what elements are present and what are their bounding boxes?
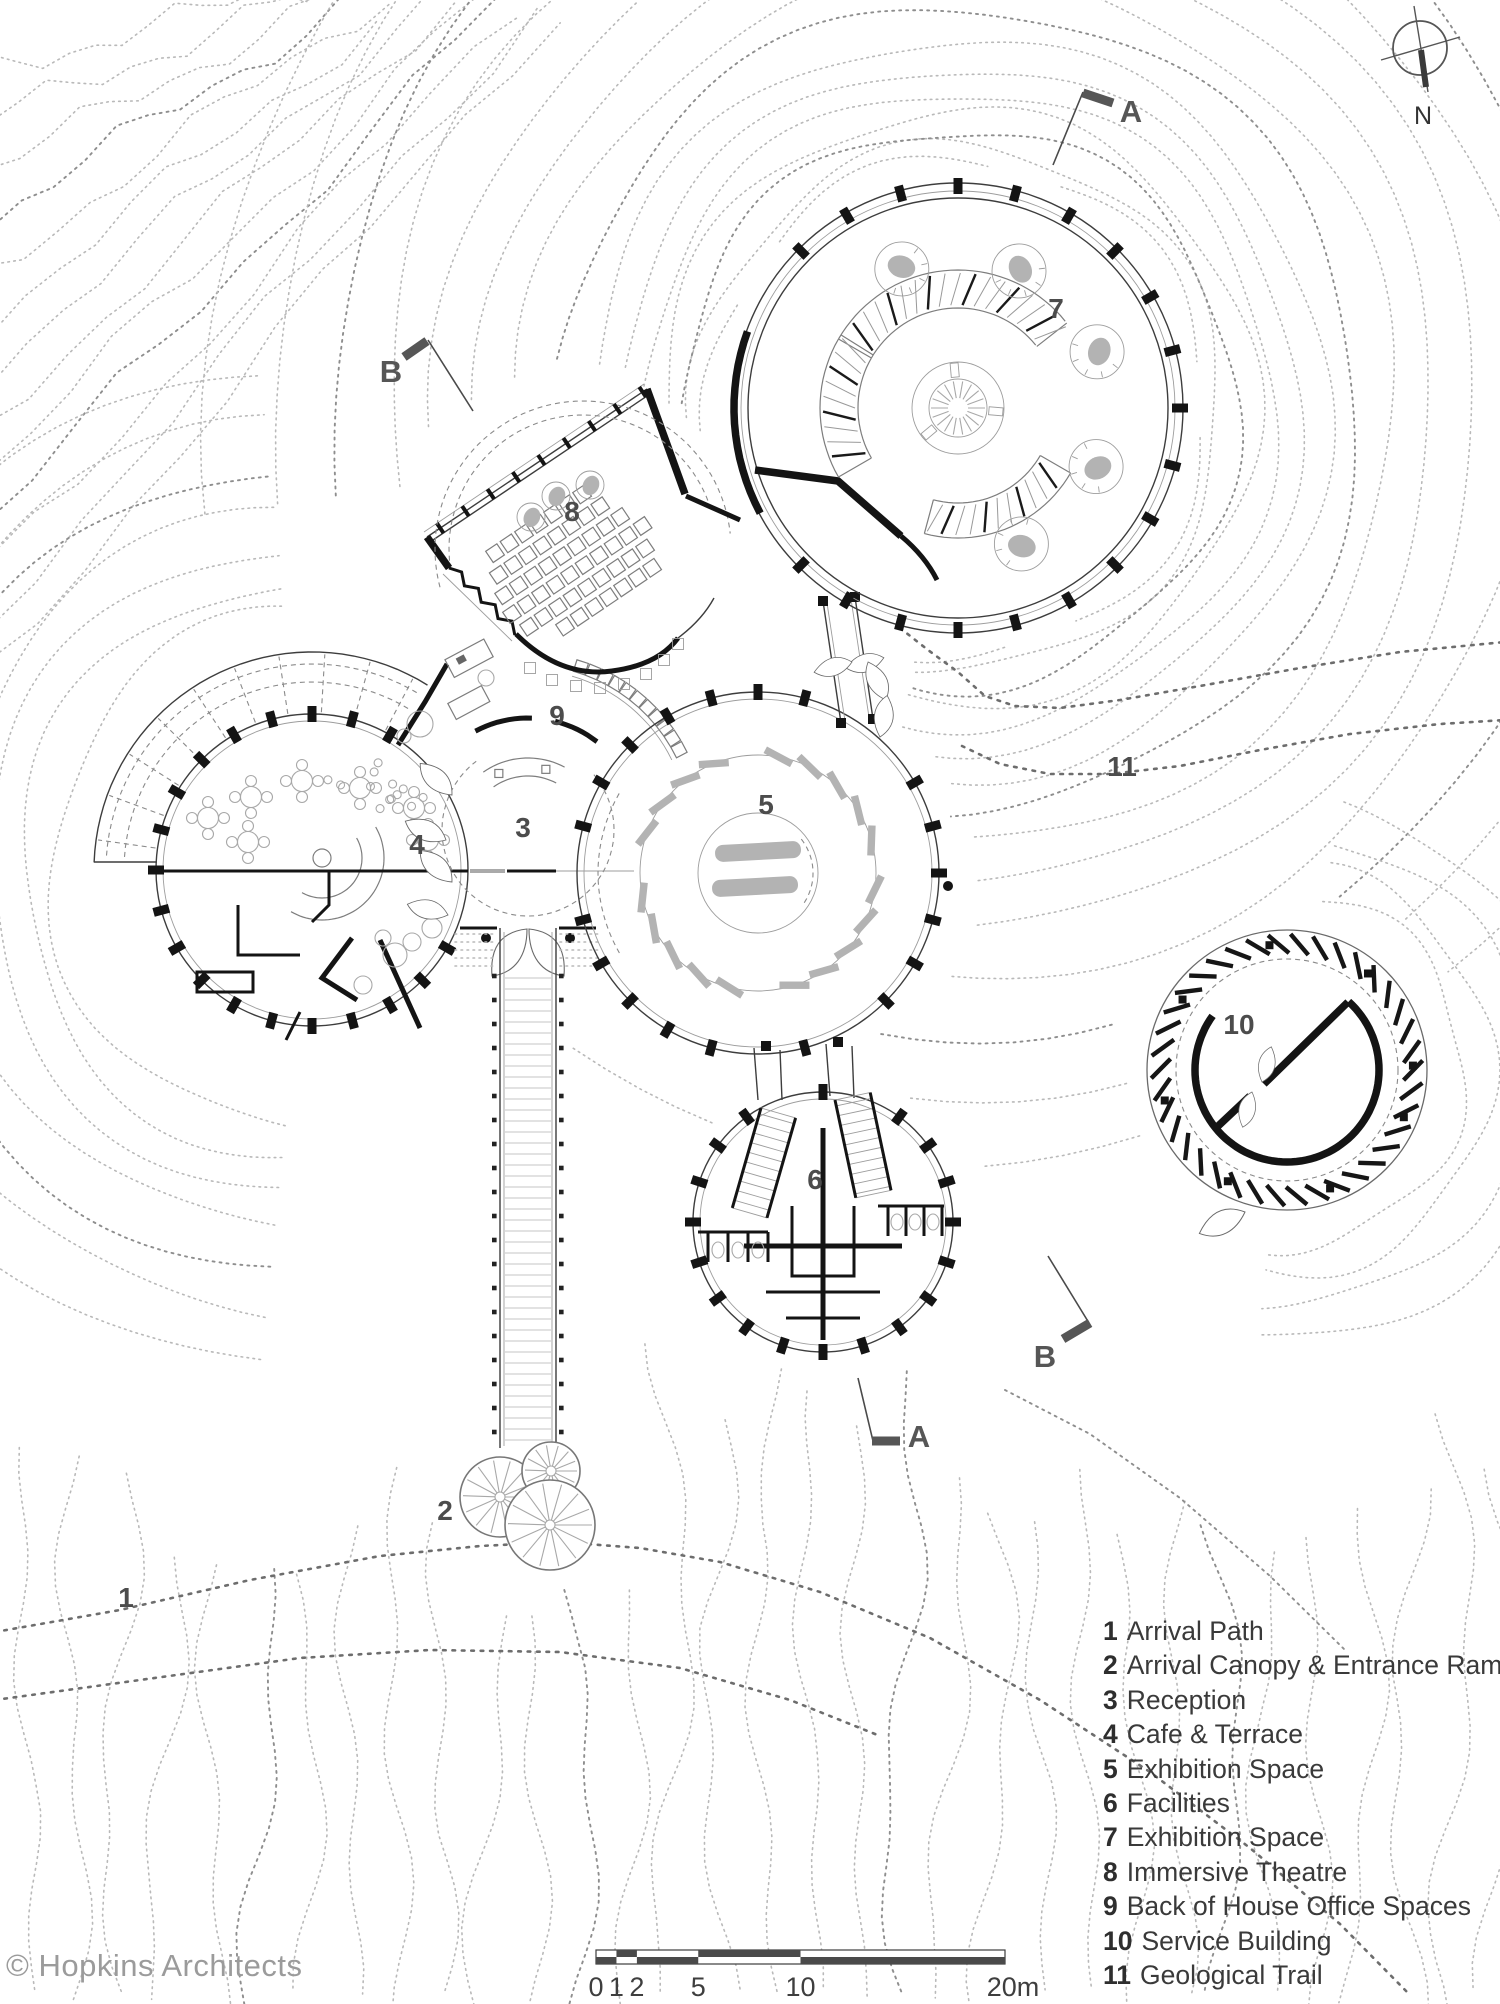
section-letter: B: [380, 354, 402, 389]
building-6-facilities: [685, 1084, 961, 1360]
building-4-cafe: [148, 706, 634, 1040]
label-arrival-canopy: 2: [437, 1495, 453, 1526]
site-plan-sheet: A B B A N 01251020m 1: [0, 0, 1500, 2004]
arrival-canopy-trees: [460, 1442, 595, 1570]
entrance-ramp: [492, 928, 564, 1448]
legend-item-number: 2: [1103, 1650, 1118, 1680]
legend-item-number: 5: [1103, 1754, 1118, 1784]
label-reception: 3: [515, 812, 531, 843]
scale-label: 1: [609, 1972, 624, 2002]
label-exhibition-5: 5: [758, 789, 774, 820]
section-letter: B: [1034, 1339, 1056, 1374]
label-back-of-house: 9: [549, 700, 565, 731]
section-letter: A: [908, 1419, 930, 1454]
legend-item-number: 1: [1103, 1616, 1118, 1646]
scale-bar: 01251020m: [588, 1950, 1039, 2002]
scale-label: 2: [629, 1972, 644, 2002]
scale-label: 10: [785, 1972, 815, 2002]
legend-item-number: 8: [1103, 1857, 1118, 1887]
north-label: N: [1414, 102, 1432, 130]
legend-item: 5Exhibition Space: [1103, 1752, 1500, 1786]
label-immersive-theatre: 8: [564, 496, 580, 527]
legend-item-label: Back of House Office Spaces: [1127, 1891, 1471, 1921]
scale-label: 20m: [987, 1972, 1040, 2002]
legend-item-label: Geological Trail: [1140, 1960, 1323, 1990]
legend-item-number: 11: [1103, 1960, 1131, 1990]
legend: 1Arrival Path2Arrival Canopy & Entrance …: [1103, 1614, 1500, 1992]
building-5-exhibition-space: [575, 684, 953, 1056]
legend-item: 7Exhibition Space: [1103, 1820, 1500, 1854]
legend-item: 1Arrival Path: [1103, 1614, 1500, 1648]
legend-item: 10Service Building: [1103, 1924, 1500, 1958]
label-cafe-terrace: 4: [409, 829, 425, 860]
legend-item-label: Exhibition Space: [1127, 1822, 1324, 1852]
building-3-reception: [405, 758, 614, 976]
legend-item-label: Cafe & Terrace: [1127, 1719, 1303, 1749]
legend-item-number: 9: [1103, 1891, 1118, 1921]
legend-item: 6Facilities: [1103, 1786, 1500, 1820]
building-10-service: [1147, 930, 1427, 1248]
legend-item-label: Arrival Path: [1127, 1616, 1264, 1646]
legend-item-number: 10: [1103, 1926, 1132, 1956]
section-marker-a-top: A: [1053, 92, 1142, 165]
legend-item-label: Reception: [1127, 1685, 1246, 1715]
north-arrow: N: [1381, 6, 1460, 130]
legend-item-number: 4: [1103, 1719, 1118, 1749]
legend-item-label: Arrival Canopy & Entrance Ramp: [1127, 1650, 1500, 1680]
legend-item-number: 3: [1103, 1685, 1118, 1715]
section-marker-b-right: B: [1034, 1256, 1090, 1374]
section-letter: A: [1120, 94, 1142, 129]
legend-item: 4Cafe & Terrace: [1103, 1717, 1500, 1751]
legend-item-number: 7: [1103, 1822, 1118, 1852]
legend-item: 2Arrival Canopy & Entrance Ramp: [1103, 1648, 1500, 1682]
legend-item: 11Geological Trail: [1103, 1958, 1500, 1992]
label-arrival-path: 1: [118, 1582, 134, 1613]
buildings: [94, 178, 1427, 1570]
legend-item-label: Facilities: [1127, 1788, 1230, 1818]
label-facilities: 6: [807, 1164, 823, 1195]
legend-item: 3Reception: [1103, 1683, 1500, 1717]
legend-item: 8Immersive Theatre: [1103, 1855, 1500, 1889]
copyright-text: © Hopkins Architects: [6, 1948, 302, 1984]
scale-label: 0: [588, 1972, 603, 2002]
legend-item-label: Immersive Theatre: [1127, 1857, 1347, 1887]
section-marker-a-bottom: A: [858, 1378, 930, 1454]
legend-item-label: Service Building: [1141, 1926, 1331, 1956]
label-geological-trail: 11: [1107, 751, 1137, 782]
legend-item-number: 6: [1103, 1788, 1118, 1818]
label-exhibition-7: 7: [1048, 293, 1064, 324]
section-marker-b-left: B: [380, 340, 473, 411]
label-service-building: 10: [1223, 1009, 1254, 1040]
legend-item: 9Back of House Office Spaces: [1103, 1889, 1500, 1923]
legend-item-label: Exhibition Space: [1127, 1754, 1324, 1784]
scale-label: 5: [691, 1972, 706, 2002]
